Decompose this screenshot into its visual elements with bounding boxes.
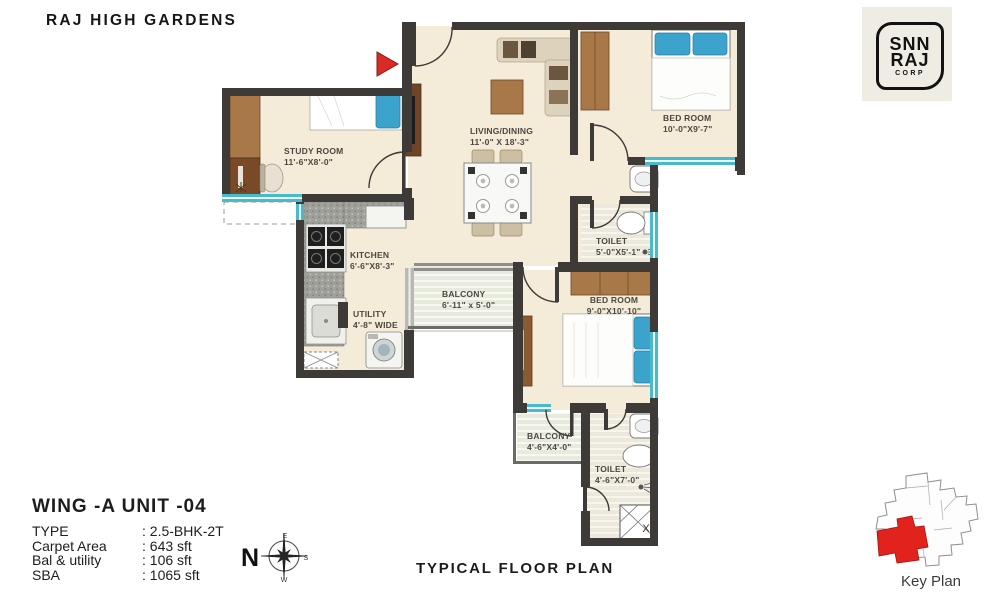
compass-e-label: E [283, 533, 288, 540]
washing-machine [366, 332, 402, 368]
shaft-x-label: X [642, 523, 650, 535]
room-label-utility: UTILITY 4'-8" WIDE [353, 309, 398, 330]
room-label-toilet-2: TOILET 4'-6"X7'-0" [595, 464, 640, 485]
plan-caption: TYPICAL FLOOR PLAN [416, 560, 614, 577]
floor-plan-page: RAJ HIGH GARDENS SNN RAJ CORP [0, 0, 1000, 600]
room-label-living-dining: LIVING/DINING 11'-0" X 18'-3" [470, 126, 533, 147]
room-label-bedroom-2: BED ROOM 9'-0"X10'-10" [582, 295, 646, 316]
unit-title: WING -A UNIT -04 [32, 496, 224, 518]
info-row-bal-utility: Bal & utility: 106 sft [32, 553, 224, 568]
compass-rose-icon: N E S W [241, 533, 309, 584]
info-row-type: TYPE: 2.5-BHK-2T [32, 524, 224, 539]
key-plan-map [876, 473, 978, 566]
info-row-carpet-area: Carpet Area: 643 sft [32, 539, 224, 554]
room-label-study: STUDY ROOM 11'-6"X8'-0" [284, 146, 343, 167]
compass-n-label: N [241, 544, 259, 572]
kitchen-shaft [304, 352, 338, 368]
info-row-sba: SBA: 1065 sft [32, 568, 224, 583]
room-label-toilet-1: TOILET 5'-0"X5'-1" [596, 236, 641, 257]
room-label-balcony-1: BALCONY 6'-11" x 5'-0" [442, 289, 495, 310]
key-plan-label: Key Plan [893, 573, 969, 590]
compass-w-label: W [281, 577, 288, 584]
room-label-bedroom-1: BED ROOM 10'-0"X9'-7" [663, 113, 712, 134]
coffee-table [491, 80, 523, 114]
entry-arrow-icon [377, 52, 398, 76]
unit-info-block: WING -A UNIT -04 TYPE: 2.5-BHK-2T Carpet… [32, 496, 224, 582]
bedroom1-furniture [581, 30, 730, 110]
room-label-balcony-2: BALCONY 4'-6"X4'-0" [527, 431, 572, 452]
study-ledge-dashed [224, 202, 298, 224]
room-label-kitchen: KITCHEN 6'-6"X8'-3" [350, 250, 395, 271]
compass-s-label: S [304, 555, 309, 562]
kitchen-stove [306, 224, 346, 272]
dining-set [464, 150, 531, 236]
